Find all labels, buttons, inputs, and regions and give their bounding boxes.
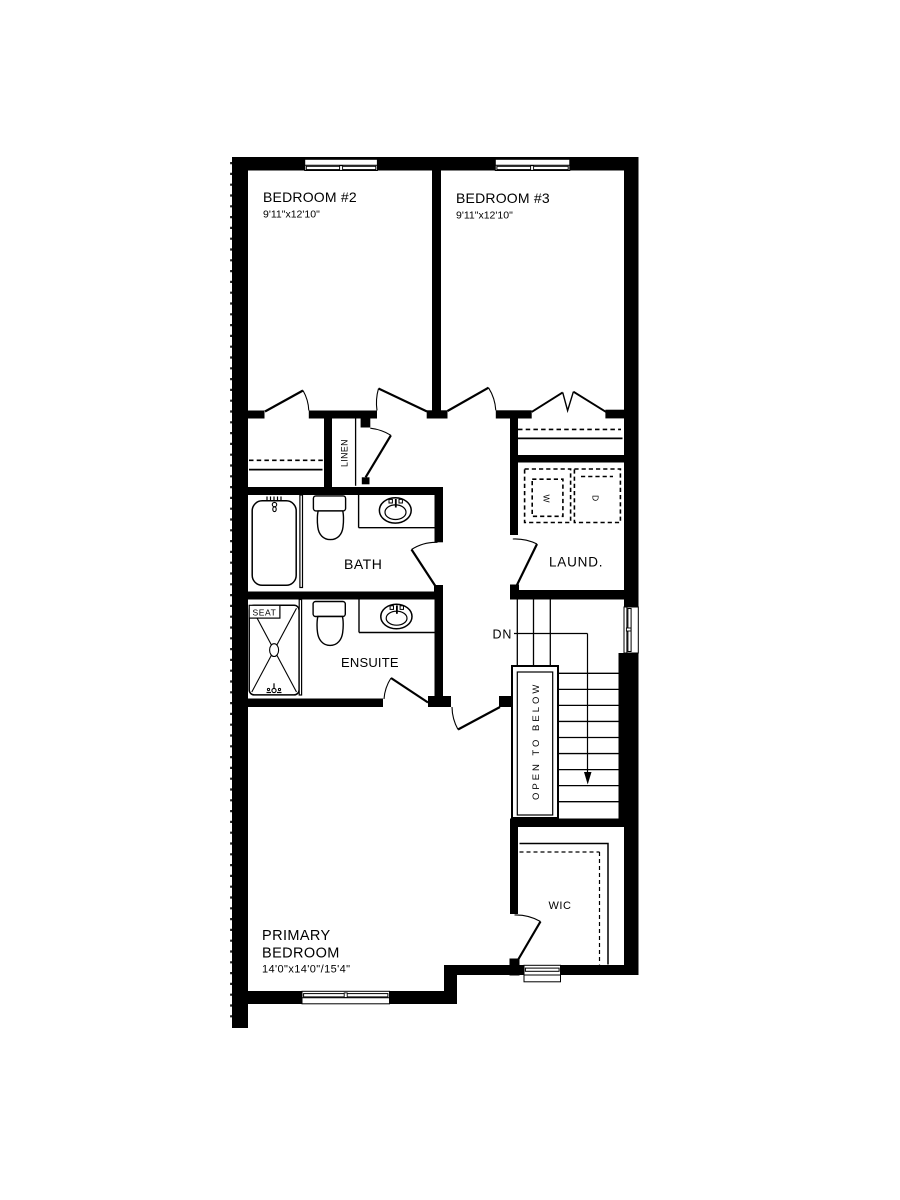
svg-text:BEDROOM #3: BEDROOM #3 bbox=[456, 190, 550, 206]
svg-text:W: W bbox=[542, 495, 552, 503]
svg-text:PRIMARY: PRIMARY bbox=[262, 928, 331, 944]
svg-text:9'11"x12'10": 9'11"x12'10" bbox=[263, 209, 320, 221]
svg-text:BATH: BATH bbox=[344, 556, 382, 572]
svg-text:D: D bbox=[591, 495, 601, 501]
svg-text:SEAT: SEAT bbox=[253, 608, 277, 618]
svg-text:LINEN: LINEN bbox=[340, 439, 350, 467]
svg-text:WIC: WIC bbox=[549, 900, 572, 912]
svg-text:BEDROOM #2: BEDROOM #2 bbox=[263, 189, 357, 205]
svg-text:DN: DN bbox=[493, 628, 513, 642]
svg-text:OPEN TO BELOW: OPEN TO BELOW bbox=[531, 682, 542, 800]
svg-text:LAUND.: LAUND. bbox=[549, 555, 603, 570]
svg-text:9'11"x12'10": 9'11"x12'10" bbox=[456, 210, 513, 222]
svg-text:14'0"x14'0"/15'4": 14'0"x14'0"/15'4" bbox=[262, 964, 350, 976]
svg-text:ENSUITE: ENSUITE bbox=[341, 655, 399, 670]
svg-text:BEDROOM: BEDROOM bbox=[262, 946, 340, 962]
